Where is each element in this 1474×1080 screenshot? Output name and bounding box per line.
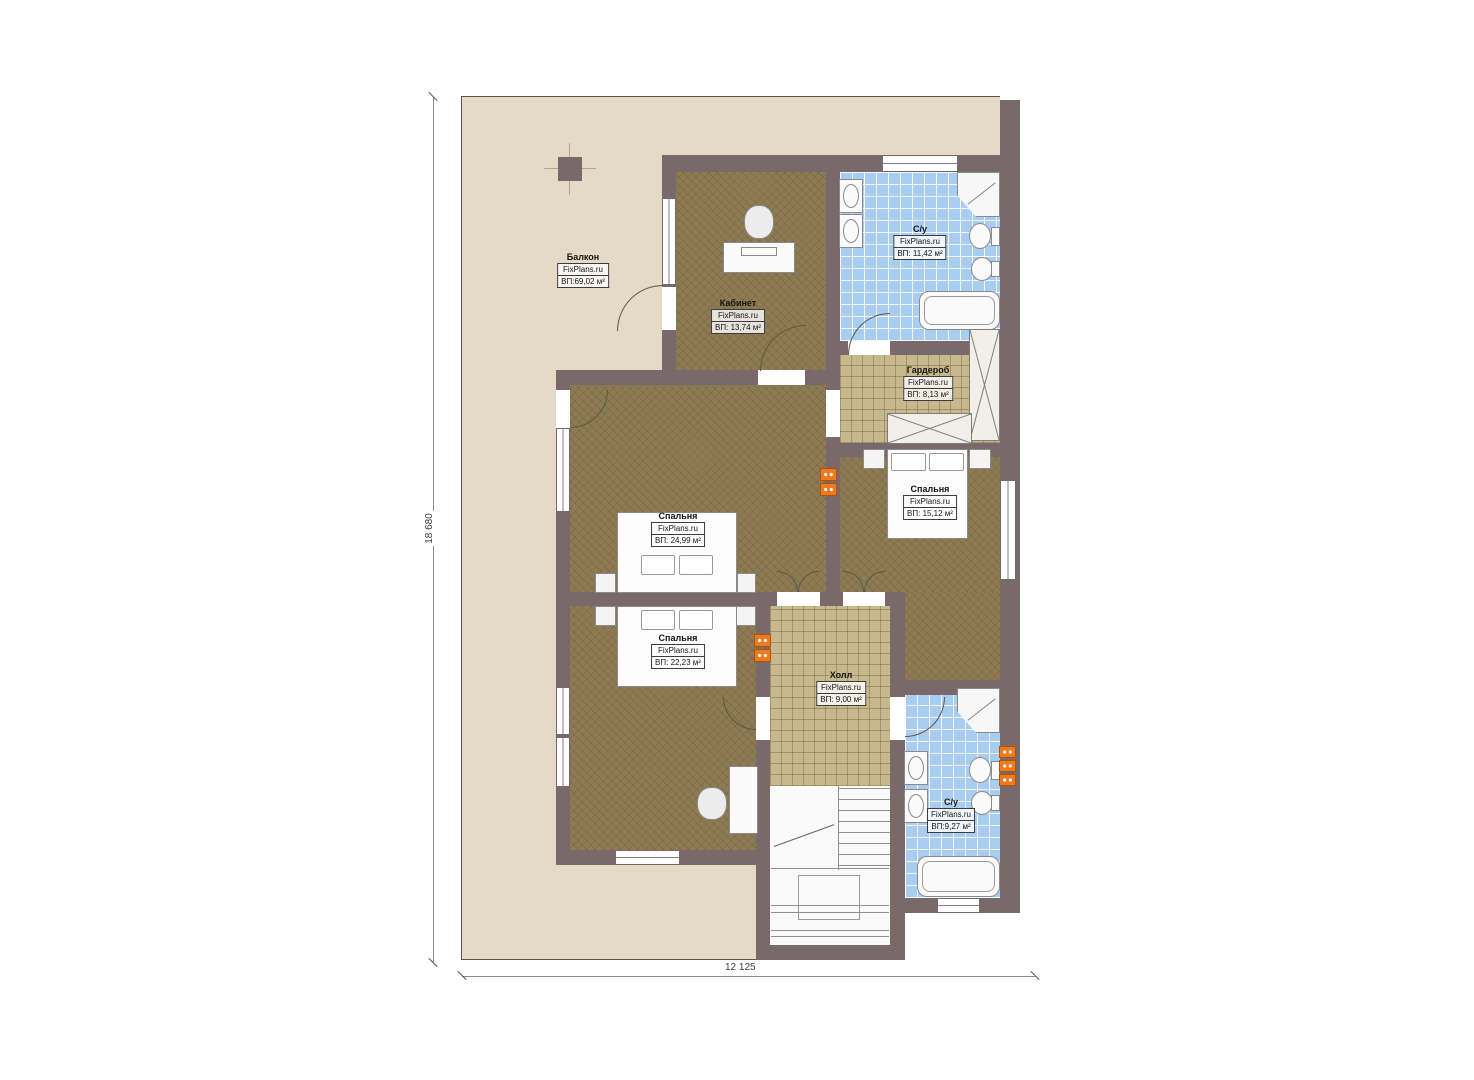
stair-tread bbox=[771, 936, 889, 937]
room-label-wardrobe: Гардероб FixPlans.ru ВП: 8,13 м² bbox=[903, 365, 953, 401]
power-outlet bbox=[999, 746, 1016, 758]
wall bbox=[756, 945, 905, 960]
room-name: Спальня bbox=[659, 511, 698, 521]
floor-plan: Балкон FixPlans.ru ВП:69,02 м² Кабинет F… bbox=[0, 0, 1474, 1080]
window bbox=[1000, 480, 1016, 580]
balcony-area bbox=[462, 865, 758, 960]
door-opening bbox=[556, 390, 570, 428]
chair bbox=[744, 205, 774, 239]
column bbox=[558, 157, 582, 181]
sink bbox=[908, 794, 924, 818]
toilet-tank bbox=[991, 227, 1000, 246]
room-label-bedroom-right: Спальня FixPlans.ru ВП: 15,12 м² bbox=[903, 484, 957, 520]
room-name: С/у bbox=[944, 797, 958, 807]
pillow bbox=[929, 453, 964, 471]
room-label-bathroom-bottom: С/у FixPlans.ru ВП:9,27 м² bbox=[927, 797, 975, 833]
room-name: Балкон bbox=[567, 252, 600, 262]
room-area: ВП: 13,74 м² bbox=[711, 322, 765, 334]
stair-tread bbox=[839, 854, 890, 855]
brand-watermark: FixPlans.ru bbox=[927, 808, 975, 821]
room-area: ВП: 22,23 м² bbox=[651, 657, 705, 669]
wall bbox=[556, 592, 770, 606]
power-outlet bbox=[754, 649, 771, 662]
room-name: Гардероб bbox=[907, 365, 950, 375]
window bbox=[556, 428, 570, 512]
brand-watermark: FixPlans.ru bbox=[557, 263, 609, 276]
desk bbox=[729, 766, 758, 834]
sink bbox=[908, 756, 924, 780]
room-label-bathroom-top: С/у FixPlans.ru ВП: 11,42 м² bbox=[893, 224, 946, 260]
pillow bbox=[891, 453, 926, 471]
room-area: ВП: 15,12 м² bbox=[903, 508, 957, 520]
room-label-balcony: Балкон FixPlans.ru ВП:69,02 м² bbox=[557, 252, 609, 288]
balcony-area bbox=[462, 97, 560, 960]
stair-tread bbox=[771, 905, 889, 906]
stair-tread bbox=[839, 832, 890, 833]
door-opening bbox=[758, 370, 805, 385]
nightstand bbox=[736, 606, 756, 626]
stair-landing bbox=[798, 875, 860, 920]
door-opening bbox=[890, 697, 905, 740]
power-outlet bbox=[820, 483, 837, 496]
stair-tread bbox=[839, 799, 890, 800]
dimension-label-height: 18 680 bbox=[424, 511, 435, 546]
wardrobe-closet bbox=[969, 329, 1000, 441]
floor-bedroom-right bbox=[905, 592, 1000, 680]
stair-tread bbox=[839, 843, 890, 844]
sink bbox=[843, 184, 859, 208]
power-outlet bbox=[999, 774, 1016, 786]
desk-monitor bbox=[741, 247, 777, 256]
door-opening bbox=[777, 592, 820, 606]
balcony-outline bbox=[461, 96, 462, 960]
door-opening bbox=[843, 592, 885, 606]
room-area: ВП:9,27 м² bbox=[927, 821, 975, 833]
balcony-outline bbox=[461, 96, 1000, 97]
bidet-base bbox=[991, 795, 1000, 811]
stair-tread bbox=[839, 788, 890, 789]
stair-tread bbox=[771, 930, 889, 931]
bathtub bbox=[917, 856, 1000, 897]
nightstand bbox=[863, 449, 885, 469]
bidet bbox=[971, 257, 993, 281]
wall bbox=[662, 155, 1020, 172]
brand-watermark: FixPlans.ru bbox=[816, 681, 866, 694]
brand-watermark: FixPlans.ru bbox=[903, 376, 953, 389]
wall bbox=[890, 680, 1020, 695]
pillow bbox=[679, 555, 713, 575]
chair bbox=[697, 787, 727, 820]
brand-watermark: FixPlans.ru bbox=[651, 522, 705, 535]
window bbox=[882, 155, 958, 172]
power-outlet bbox=[999, 760, 1016, 772]
pillow bbox=[641, 610, 675, 630]
dimension-line-horizontal bbox=[462, 976, 1035, 977]
stair-landing-line bbox=[771, 868, 889, 869]
bathtub bbox=[919, 291, 1000, 330]
pillow bbox=[679, 610, 713, 630]
room-name: Спальня bbox=[659, 633, 698, 643]
nightstand bbox=[737, 573, 756, 593]
room-area: ВП:69,02 м² bbox=[557, 276, 609, 288]
brand-watermark: FixPlans.ru bbox=[903, 495, 957, 508]
pillow bbox=[641, 555, 675, 575]
toilet bbox=[969, 223, 991, 249]
room-area: ВП: 11,42 м² bbox=[893, 248, 946, 260]
stair-tread bbox=[771, 912, 889, 913]
wardrobe-closet bbox=[887, 413, 972, 444]
brand-watermark: FixPlans.ru bbox=[711, 309, 765, 322]
nightstand bbox=[969, 449, 991, 469]
sink bbox=[843, 219, 859, 243]
nightstand bbox=[595, 573, 616, 593]
door-opening bbox=[756, 697, 770, 740]
room-area: ВП: 24,99 м² bbox=[651, 535, 705, 547]
wall bbox=[756, 592, 770, 960]
door-opening bbox=[662, 287, 676, 330]
power-outlet bbox=[754, 634, 771, 647]
room-label-bedroom-master: Спальня FixPlans.ru ВП: 24,99 м² bbox=[651, 511, 705, 547]
nightstand bbox=[595, 606, 616, 626]
room-name: С/у bbox=[913, 224, 927, 234]
room-label-hall: Холл FixPlans.ru ВП: 9,00 м² bbox=[816, 670, 866, 706]
room-label-bedroom-bottom: Спальня FixPlans.ru ВП: 22,23 м² bbox=[651, 633, 705, 669]
window-mullion bbox=[556, 734, 570, 738]
door-opening bbox=[826, 390, 840, 437]
window bbox=[662, 198, 676, 285]
room-label-study: Кабинет FixPlans.ru ВП: 13,74 м² bbox=[711, 298, 765, 334]
stair-tread bbox=[839, 821, 890, 822]
dimension-label-width: 12 125 bbox=[723, 962, 758, 973]
brand-watermark: FixPlans.ru bbox=[651, 644, 705, 657]
stair-tread bbox=[839, 865, 890, 866]
window bbox=[937, 898, 980, 913]
brand-watermark: FixPlans.ru bbox=[893, 235, 946, 248]
room-area: ВП: 8,13 м² bbox=[903, 389, 953, 401]
room-name: Спальня bbox=[911, 484, 950, 494]
wall bbox=[826, 155, 840, 606]
bidet-base bbox=[991, 261, 1000, 277]
room-name: Холл bbox=[830, 670, 853, 680]
toilet bbox=[969, 757, 991, 783]
stair-tread bbox=[839, 810, 890, 811]
power-outlet bbox=[820, 468, 837, 481]
room-name: Кабинет bbox=[720, 298, 756, 308]
room-area: ВП: 9,00 м² bbox=[816, 694, 866, 706]
balcony-outline bbox=[461, 959, 758, 960]
window bbox=[615, 850, 680, 865]
